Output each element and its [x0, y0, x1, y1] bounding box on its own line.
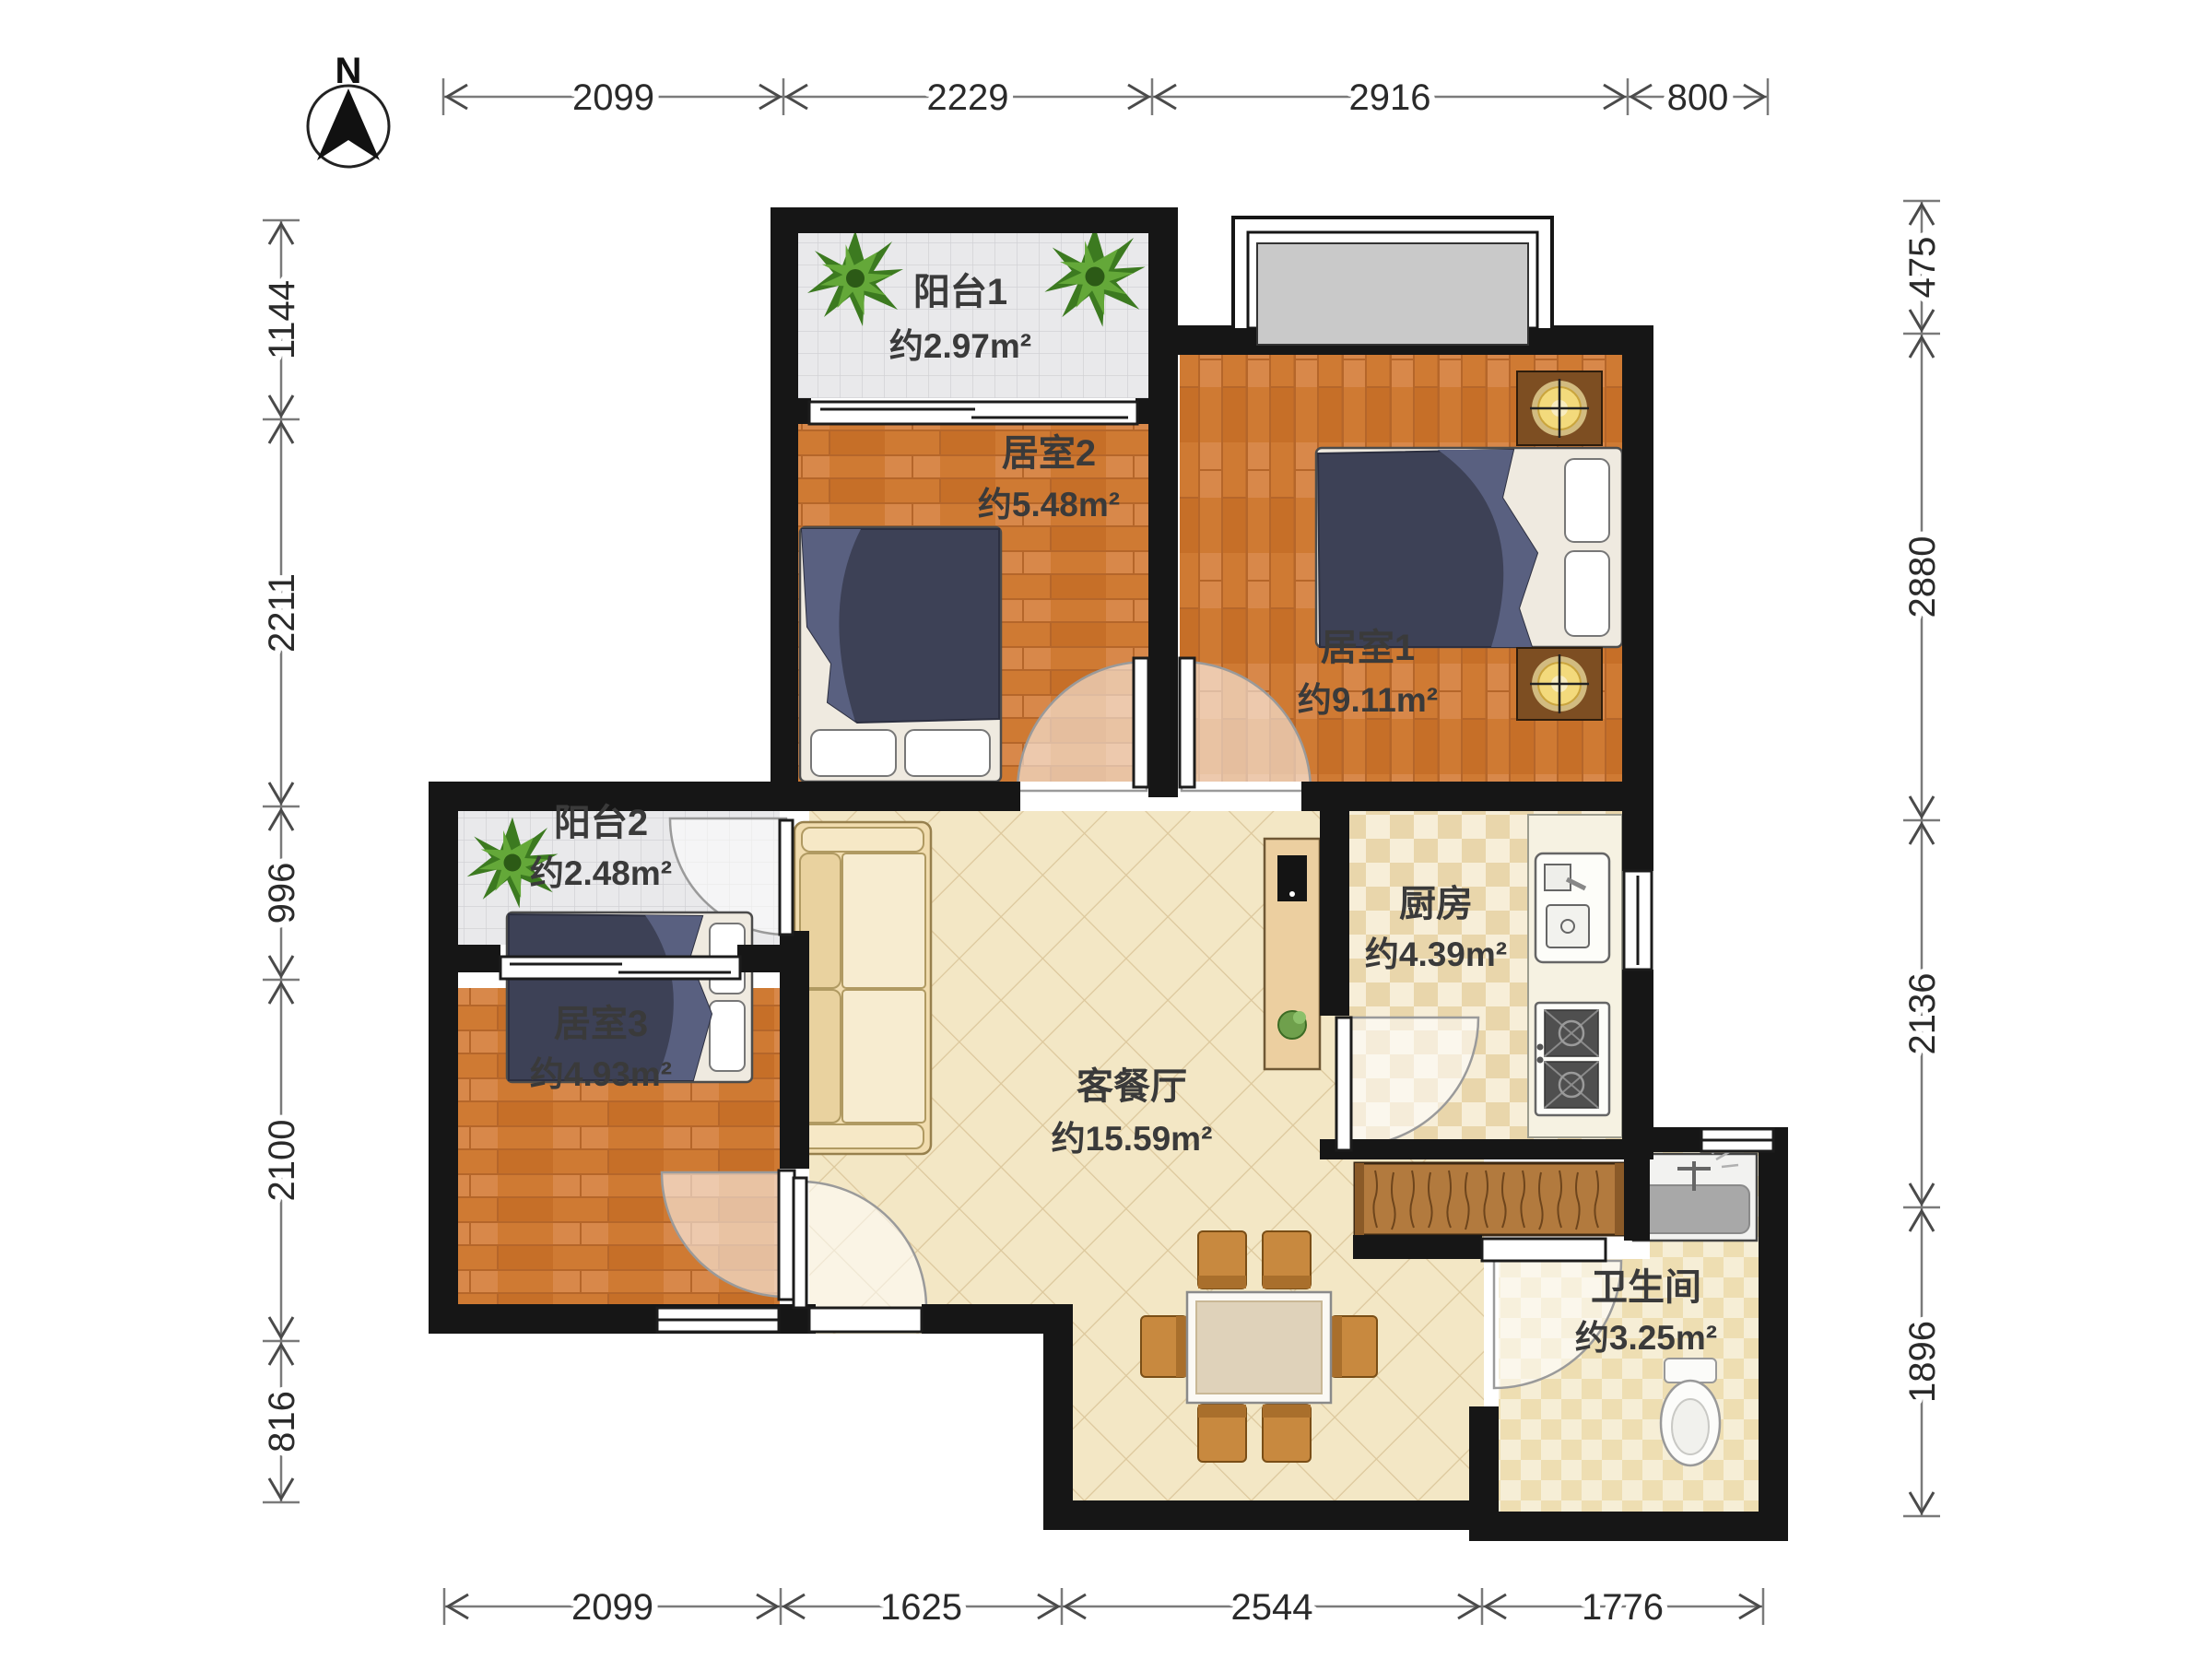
- dimension-label: 2099: [572, 77, 654, 118]
- dimension-label: 2916: [1349, 77, 1431, 118]
- nightstand: [1517, 371, 1602, 445]
- bathroom-threshold: [1482, 1239, 1606, 1261]
- bedroom1-door-leaf: [1180, 658, 1194, 787]
- bedroom2-door-leaf: [1134, 658, 1148, 787]
- balcony2-door-leaf: [780, 820, 793, 935]
- kitchen-name: 厨房: [1399, 884, 1473, 924]
- bedroom1-area: 约9.11m²: [1298, 681, 1438, 719]
- bathroom-area: 约3.25m²: [1575, 1319, 1717, 1357]
- dimension-label: 2099: [571, 1587, 653, 1628]
- dimension-label: 2229: [927, 77, 1009, 118]
- stove-burner: [1545, 1062, 1598, 1108]
- dimension-label: 1144: [262, 280, 302, 359]
- bedroom2-area: 约5.48m²: [978, 486, 1120, 524]
- dimension-label: 475: [1902, 237, 1943, 299]
- balcony2-sliding-window: [500, 957, 740, 979]
- floorplan-page: 阳台1 约2.97m² 居室2 约5.48m² 居室1 约9.11m² 阳台2 …: [0, 0, 2212, 1659]
- dimension-chain-top: 209922292916800: [443, 77, 1768, 118]
- balcony1-sliding-window: [809, 402, 1137, 424]
- entrance-threshold: [809, 1308, 922, 1332]
- closet: [1355, 1163, 1624, 1235]
- kitchen-window: [1624, 871, 1652, 970]
- bathroom-name: 卫生间: [1591, 1267, 1701, 1308]
- sofa: [794, 822, 931, 1154]
- dimension-label: 2136: [1902, 973, 1943, 1055]
- dimension-label: 816: [262, 1391, 302, 1453]
- bedroom3-door-leaf: [779, 1171, 794, 1300]
- bedroom3-area: 约4.93m²: [530, 1055, 672, 1093]
- pillow: [1565, 551, 1609, 636]
- dimension-label: 1896: [1902, 1321, 1943, 1403]
- dimension-chain-bottom: 2099162525441776: [444, 1587, 1763, 1628]
- dimension-label: 1625: [880, 1587, 962, 1628]
- floorplan-canvas: 阳台1 约2.97m² 居室2 约5.48m² 居室1 约9.11m² 阳台2 …: [0, 0, 2212, 1659]
- living-name: 客餐厅: [1077, 1066, 1187, 1107]
- balcony2-area: 约2.48m²: [530, 854, 672, 892]
- nightstand: [1517, 648, 1602, 720]
- pillow: [811, 730, 896, 776]
- entrance-door-leaf: [794, 1178, 806, 1308]
- dimension-chain-left: 114422119962100816: [262, 220, 302, 1502]
- tv-cabinet: [1265, 839, 1320, 1069]
- bedroom1-bed: [1316, 448, 1622, 647]
- compass: N: [308, 51, 389, 167]
- bedroom3-window: [657, 1308, 779, 1332]
- bedroom1-name: 居室1: [1321, 628, 1415, 668]
- dimension-label: 2100: [262, 1120, 302, 1202]
- balcony2-name: 阳台2: [554, 803, 648, 843]
- pillow: [1565, 459, 1609, 542]
- kitchen-area: 约4.39m²: [1365, 935, 1507, 973]
- living-area: 约15.59m²: [1052, 1120, 1213, 1158]
- bedroom2-name: 居室2: [1002, 433, 1096, 474]
- toilet: [1661, 1359, 1720, 1465]
- dimension-label: 800: [1667, 77, 1729, 118]
- bedroom2-bed: [800, 527, 1001, 782]
- dimension-label: 1776: [1582, 1587, 1664, 1628]
- balcony1-area: 约2.97m²: [889, 327, 1031, 365]
- pillow: [905, 730, 990, 776]
- dimension-label: 2544: [1231, 1587, 1313, 1628]
- bathroom-window: [1701, 1129, 1773, 1151]
- kitchen-door-leaf: [1336, 1018, 1351, 1150]
- dimension-label: 2211: [262, 573, 302, 653]
- pillow: [710, 1001, 745, 1071]
- balcony1-name: 阳台1: [913, 272, 1007, 312]
- bedroom3-name: 居室3: [554, 1004, 648, 1044]
- dimension-label: 996: [262, 863, 302, 924]
- bay-window: [1233, 218, 1552, 345]
- dimension-chain-right: 475288021361896: [1902, 201, 1943, 1516]
- kitchen-counter: [1528, 815, 1622, 1137]
- stove-burner: [1545, 1010, 1598, 1056]
- dimension-label: 2880: [1902, 536, 1943, 618]
